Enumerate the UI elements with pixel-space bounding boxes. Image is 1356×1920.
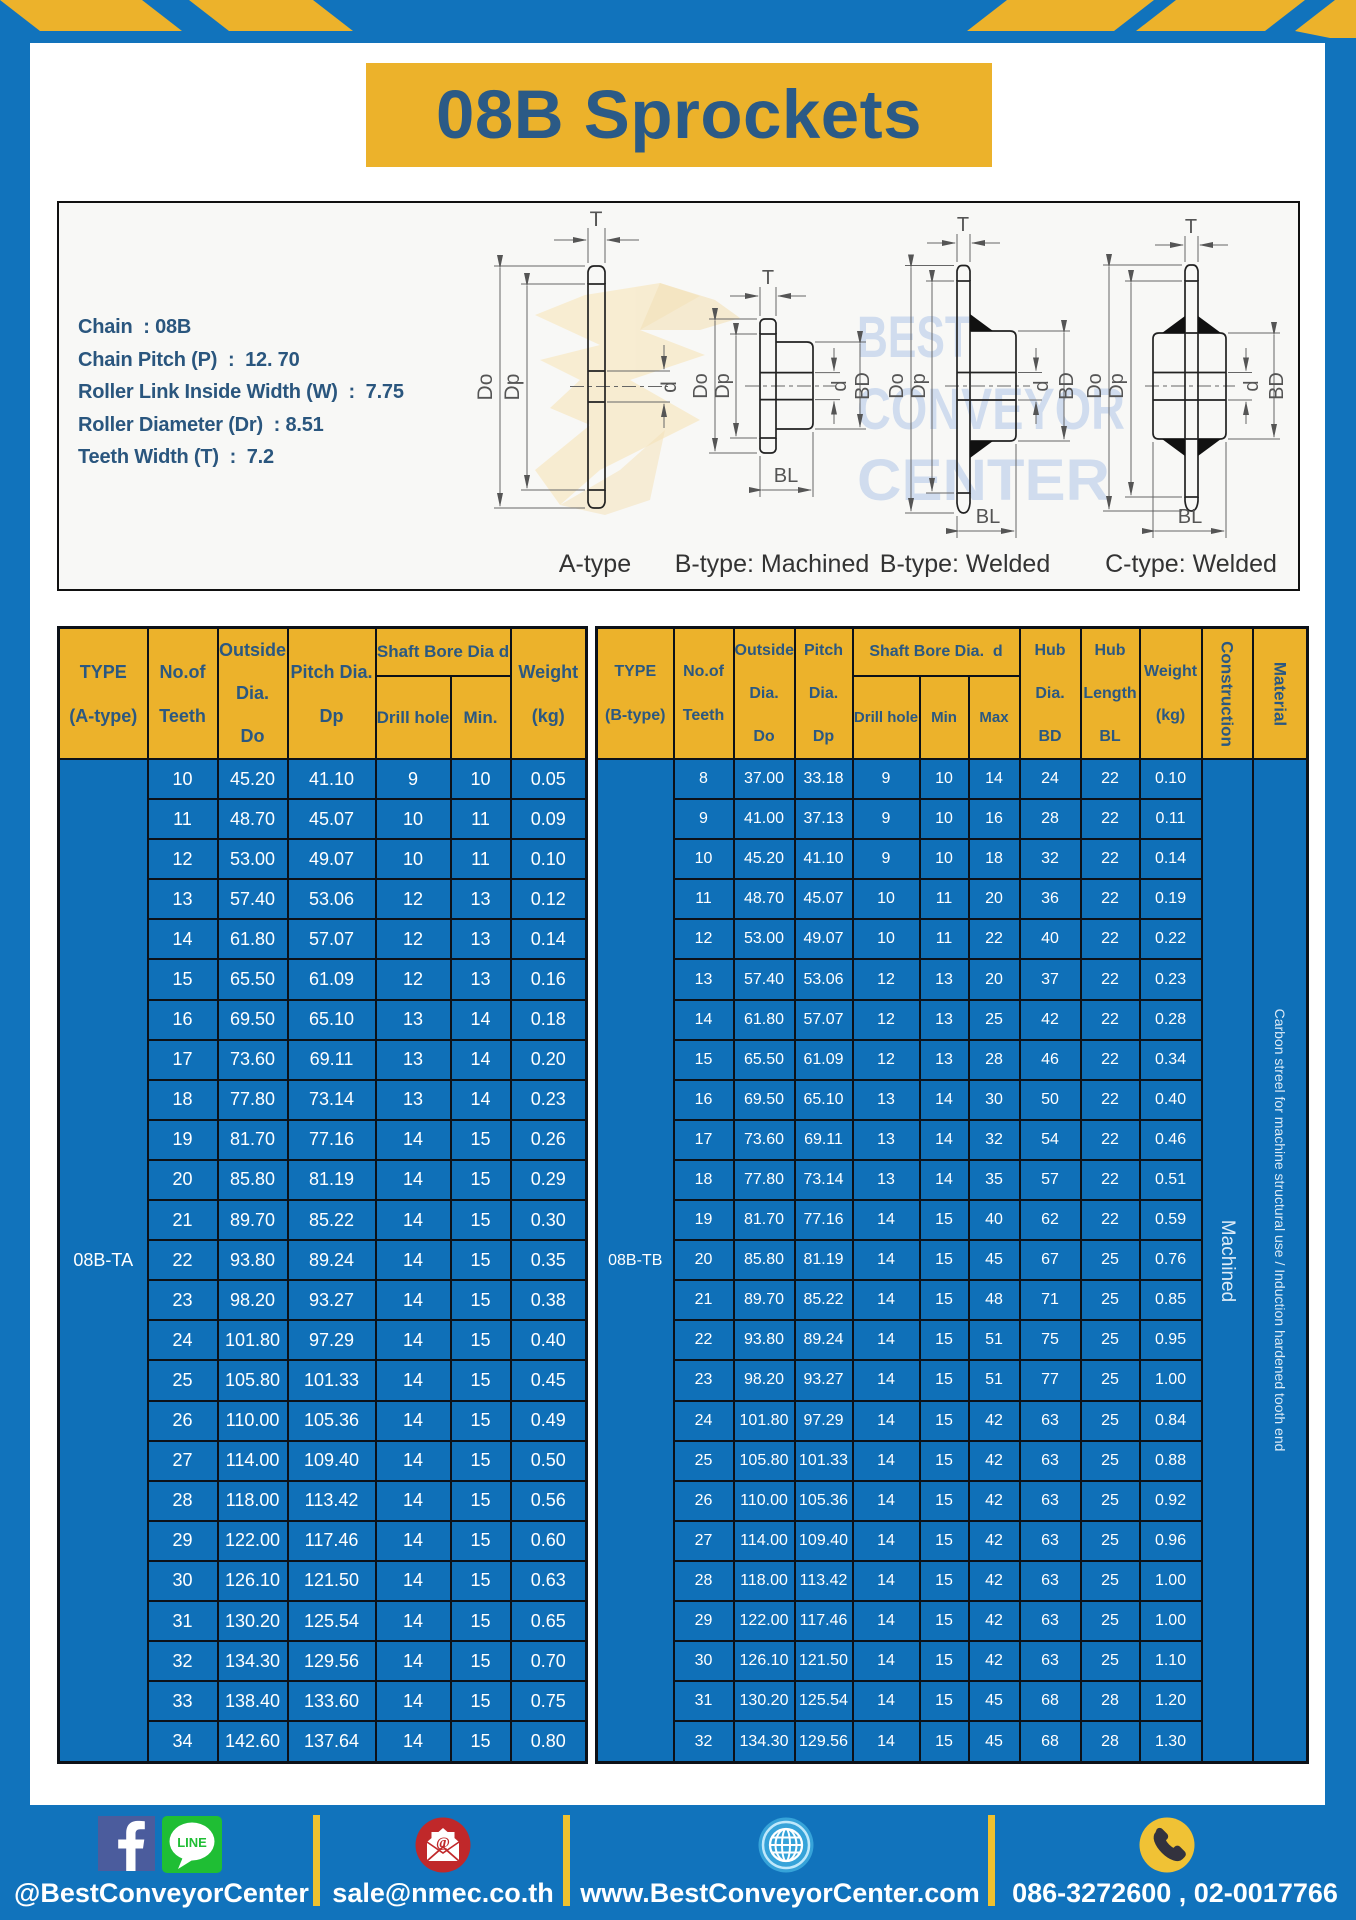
svg-text:BD: BD (1266, 372, 1288, 400)
svg-text:LINE: LINE (177, 1835, 207, 1850)
svg-text:CENTER: CENTER (857, 448, 1110, 513)
svg-text:BEST: BEST (857, 305, 971, 370)
svg-text:d: d (658, 381, 681, 393)
svg-text:T: T (762, 267, 774, 289)
svg-text:BL: BL (1178, 506, 1202, 528)
svg-text:B-type: Machined: B-type: Machined (675, 550, 870, 578)
svg-text:A-type: A-type (559, 550, 631, 578)
svg-text:Do: Do (1084, 373, 1106, 399)
svg-text:Dp: Dp (908, 373, 930, 399)
svg-text:BD: BD (852, 372, 874, 400)
svg-text:BL: BL (774, 465, 798, 487)
svg-text:Dp: Dp (712, 373, 734, 399)
svg-text:Do: Do (690, 373, 712, 399)
svg-text:B-type: Welded: B-type: Welded (880, 550, 1050, 578)
svg-text:d: d (829, 380, 851, 391)
svg-text:d: d (1031, 380, 1053, 391)
svg-text:@: @ (436, 1835, 450, 1851)
svg-text:T: T (590, 208, 603, 231)
svg-text:C-type: Welded: C-type: Welded (1105, 550, 1277, 578)
svg-text:T: T (957, 214, 969, 236)
svg-text:Dp: Dp (1106, 373, 1128, 399)
svg-text:Do: Do (886, 373, 908, 399)
svg-text:BL: BL (976, 506, 1000, 528)
svg-text:d: d (1241, 380, 1263, 391)
svg-text:BD: BD (1056, 372, 1078, 400)
svg-text:T: T (1185, 216, 1197, 238)
